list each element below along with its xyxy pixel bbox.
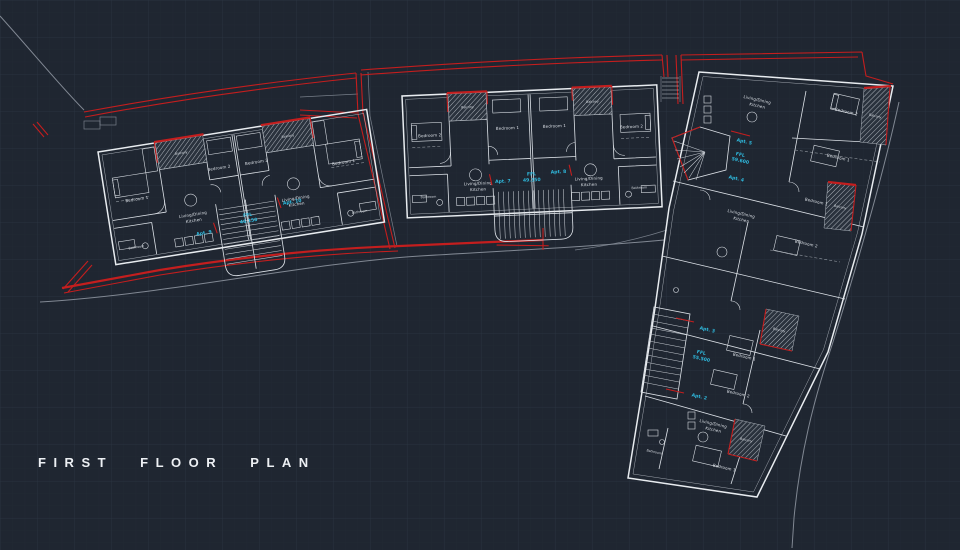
room-label-bedroom2: Bedroom 2: [418, 132, 442, 138]
room-label-living2: Kitchen: [470, 186, 487, 192]
ffl-label: FFL: [527, 171, 537, 177]
cad-drawing-area[interactable]: Bedroom 1 Bedroom 2 Balcony Living/Dinin…: [0, 0, 960, 550]
drawing-title: FIRST FLOOR PLAN: [38, 455, 316, 470]
room-label-bathroom: Bathroom: [631, 185, 647, 190]
room-label-bathroom: Bathroom: [421, 195, 437, 200]
room-label-bedroom1: Bedroom 1: [543, 123, 567, 129]
apt-label: Apt. 8: [551, 169, 567, 176]
room-label-bedroom2: Bedroom 2: [620, 123, 644, 129]
room-label-balcony: Balcony: [461, 105, 474, 110]
room-label-living2: Kitchen: [581, 182, 598, 188]
apt-label: Apt. 7: [495, 178, 511, 185]
room-label-balcony: Balcony: [586, 99, 599, 104]
room-label-bedroom1: Bedroom 1: [496, 125, 520, 131]
floor-plan-canvas: Bedroom 1 Bedroom 2 Balcony Living/Dinin…: [0, 0, 960, 550]
ffl-value: 49.350: [523, 177, 541, 184]
